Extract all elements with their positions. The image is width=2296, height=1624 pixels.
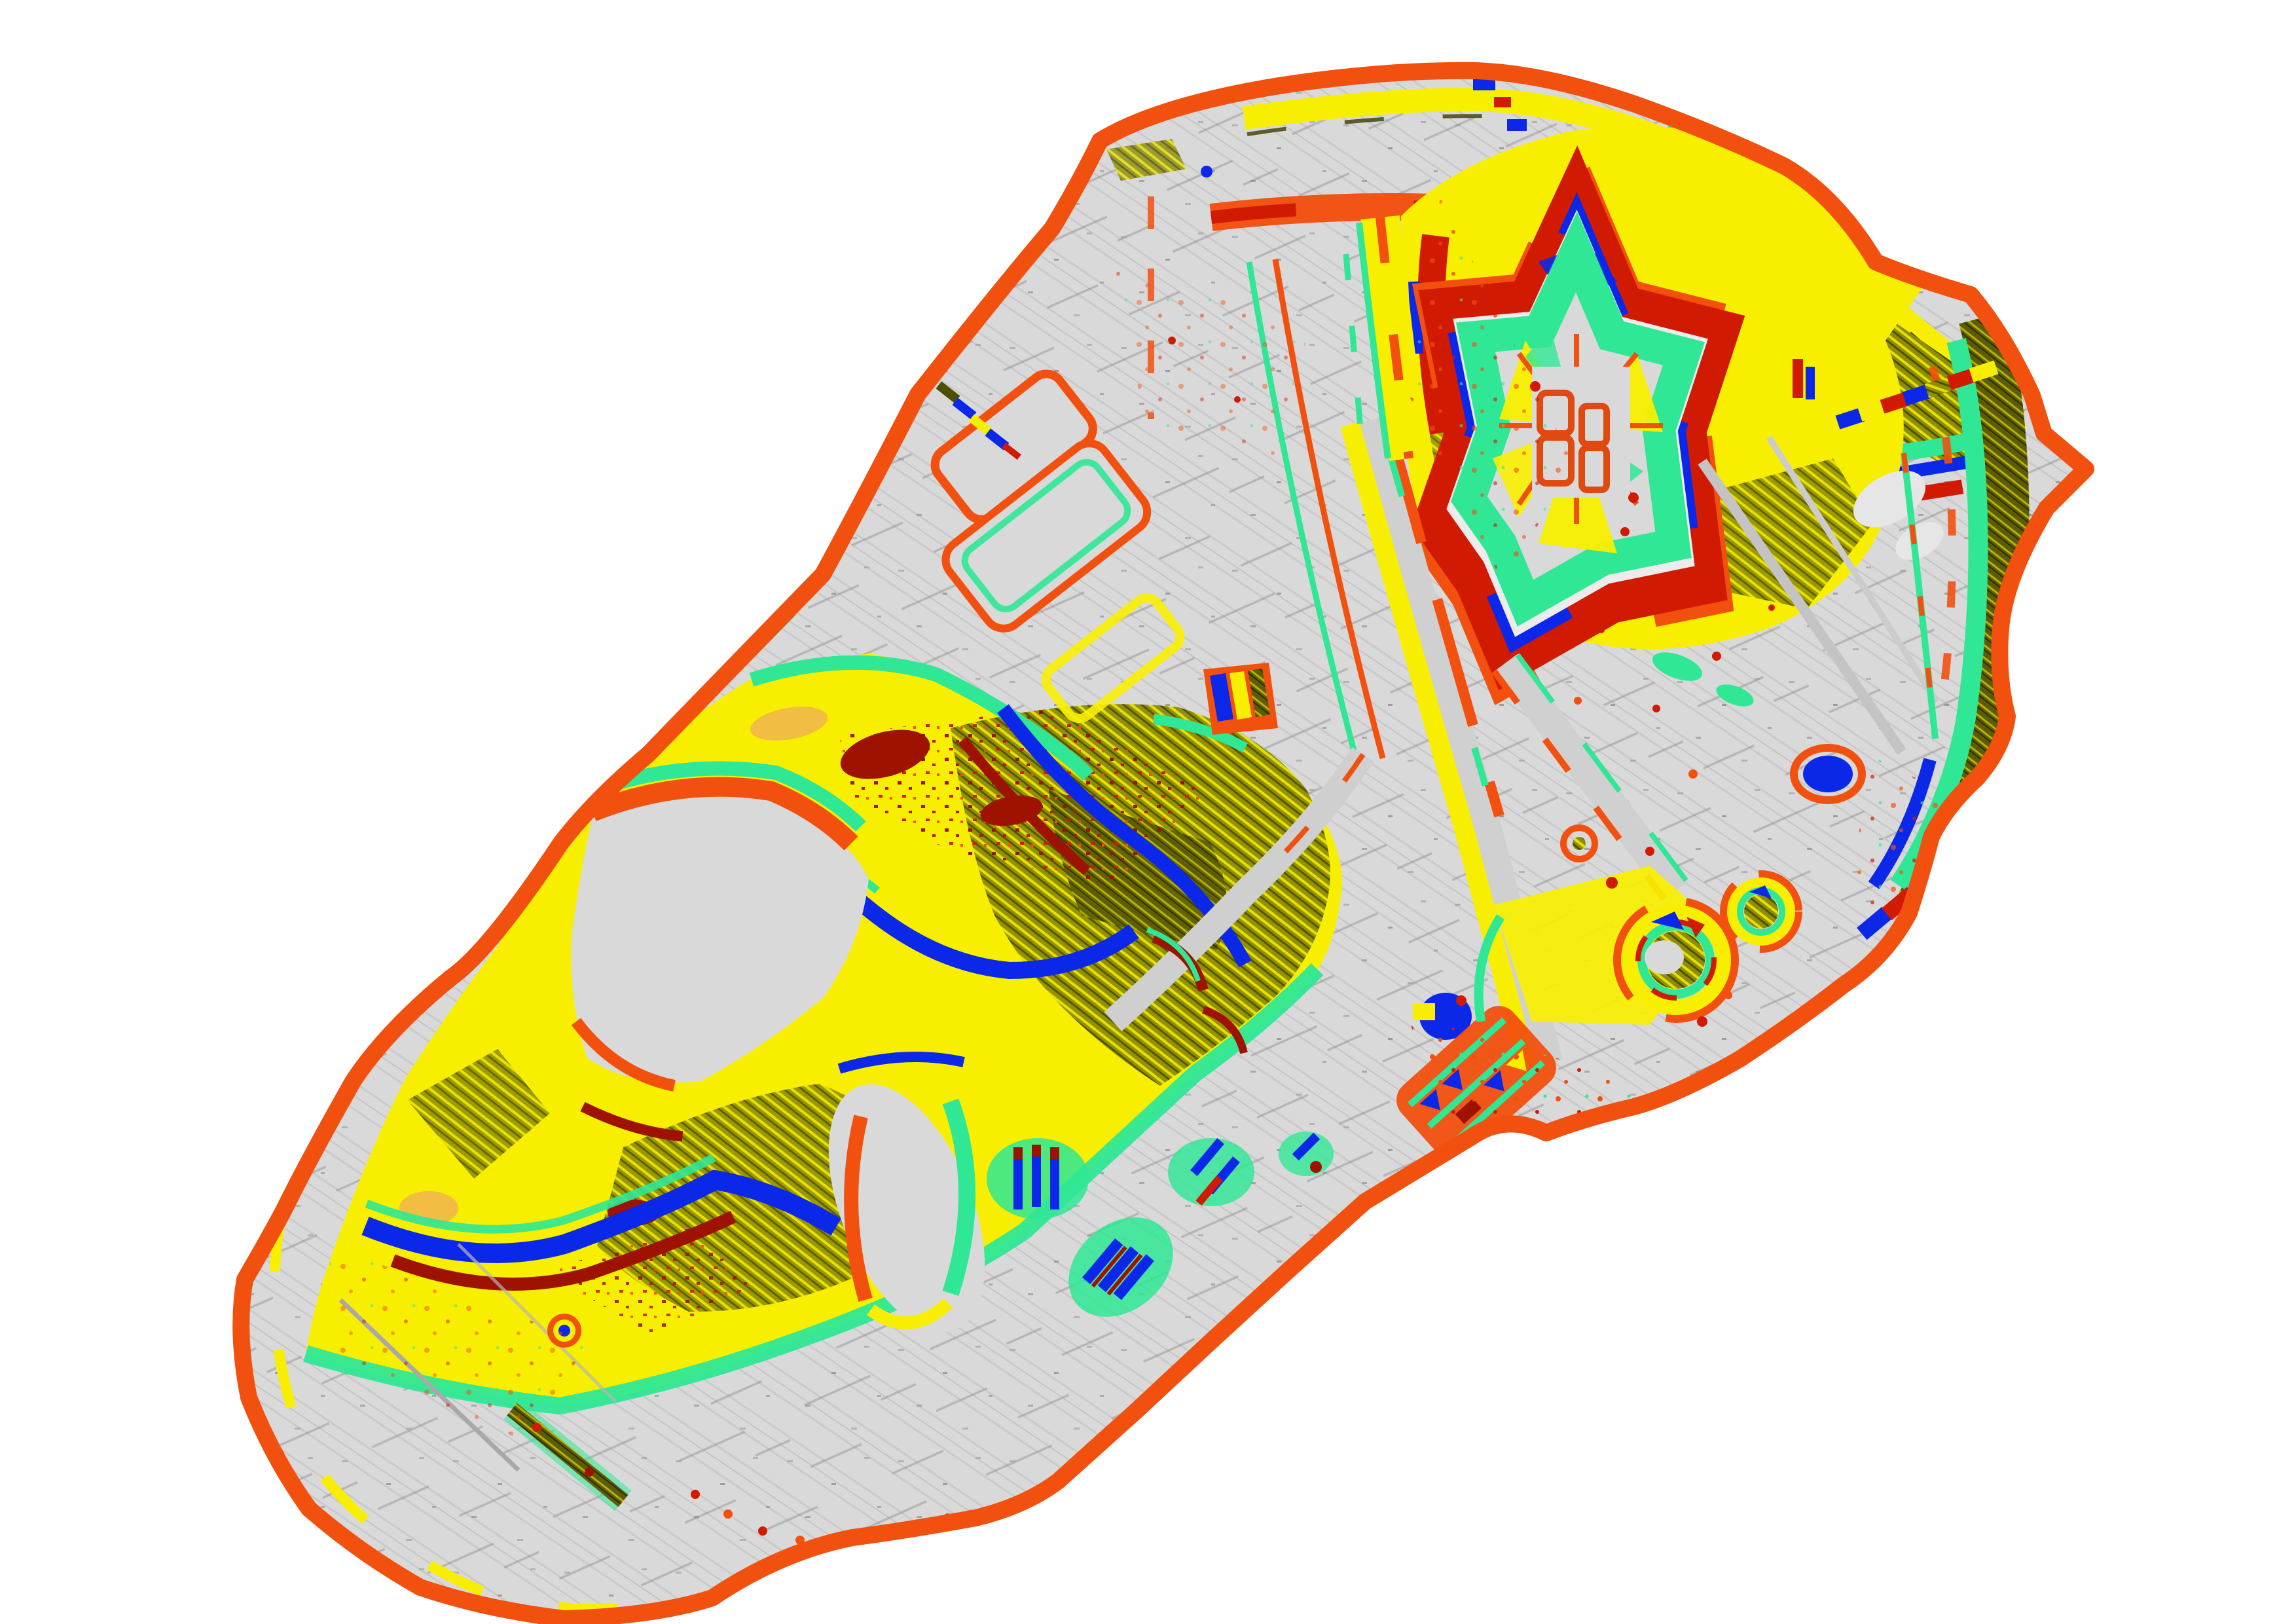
blue-dot — [1201, 166, 1212, 177]
mound-medium — [1724, 875, 1798, 948]
blue-block — [1507, 119, 1527, 131]
orange-dot — [1724, 991, 1732, 999]
mound-gray-core — [1645, 940, 1684, 974]
dot — [1574, 697, 1582, 705]
mound-olive-cone — [1744, 895, 1778, 929]
red-dot — [1606, 877, 1618, 889]
red-dot — [585, 1467, 594, 1477]
building-cap — [1013, 1147, 1023, 1159]
building-cap — [1050, 1147, 1059, 1159]
green-halo — [1279, 1132, 1334, 1176]
red-bar — [1793, 359, 1803, 398]
dot — [1768, 604, 1775, 611]
chevron-glyph — [1203, 663, 1278, 735]
red-dot — [1456, 995, 1467, 1006]
dot — [1620, 527, 1630, 536]
dot — [1652, 705, 1660, 712]
dot — [1671, 587, 1679, 595]
red-block — [1494, 97, 1511, 107]
blue-bar — [1806, 367, 1815, 399]
dot — [723, 1509, 733, 1519]
raster-map — [0, 0, 2296, 1624]
dot — [1598, 627, 1605, 633]
dot — [1712, 652, 1721, 661]
red-dot — [1697, 1016, 1707, 1027]
dot — [691, 1490, 700, 1499]
red-dot — [1628, 492, 1639, 503]
red-dot — [1310, 1161, 1322, 1173]
mound-olive-cone — [1573, 837, 1586, 850]
dot — [1688, 769, 1698, 779]
building-cap — [1032, 1145, 1041, 1156]
map-canvas[interactable] — [0, 0, 2296, 1624]
dot — [758, 1526, 767, 1536]
red-dot — [1645, 847, 1654, 856]
blue-blob — [1803, 756, 1853, 792]
